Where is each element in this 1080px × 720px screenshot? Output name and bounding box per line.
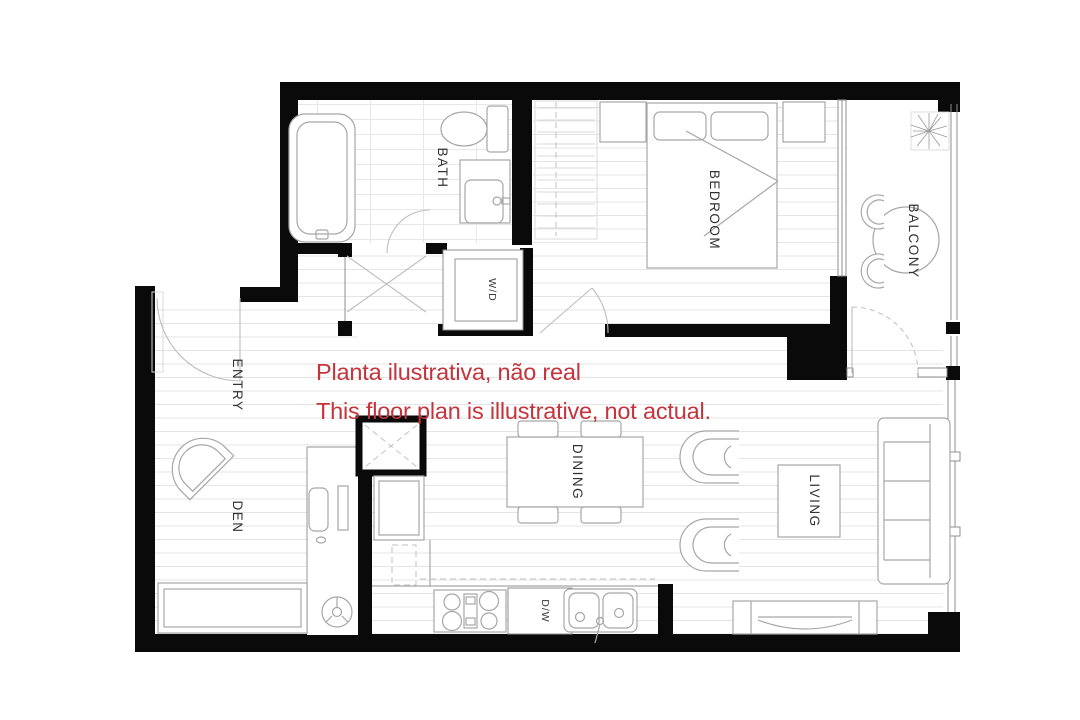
entry-label: ENTRY <box>230 358 245 411</box>
shaft-icon <box>359 419 423 473</box>
washer-dryer-label: W/D <box>486 278 498 301</box>
accent-chair-bottom-icon <box>680 519 739 571</box>
dining-label: DINING <box>570 444 585 500</box>
bedroom-label: BEDROOM <box>707 170 722 250</box>
stool-icon <box>322 597 352 627</box>
den-label: DEN <box>230 500 245 533</box>
den-bench-icon <box>158 583 307 633</box>
nightstand-right-icon <box>783 102 825 142</box>
bath-label: BATH <box>435 147 450 188</box>
disclaimer-line-2: This floor plan is illustrative, not act… <box>316 398 711 424</box>
floor-plan-page: BATH W/D BEDROOM BALCONY ENTRY DEN DININ… <box>0 0 1080 720</box>
den-desk-icon <box>307 447 358 635</box>
living-label: LIVING <box>807 474 822 527</box>
sofa-icon <box>878 418 950 584</box>
dishwasher-label: D/W <box>539 599 551 622</box>
balcony-furniture <box>861 112 949 288</box>
accent-chair-top-icon <box>680 431 739 483</box>
balcony-label: BALCONY <box>906 203 921 278</box>
washer-dryer-icon <box>455 259 517 321</box>
floor-plan-canvas: BATH W/D BEDROOM BALCONY ENTRY DEN DININ… <box>0 0 1080 720</box>
bathtub-icon <box>289 114 355 242</box>
fridge-icon <box>374 476 424 540</box>
stove-icon <box>434 590 506 632</box>
bath-vanity-icon <box>460 160 510 223</box>
disclaimer-line-1: Planta ilustrativa, não real <box>316 359 581 385</box>
plant-icon <box>911 112 949 150</box>
nightstand-left-icon <box>600 102 646 142</box>
laundry-closet <box>443 250 523 330</box>
tv-console-icon <box>733 601 877 634</box>
